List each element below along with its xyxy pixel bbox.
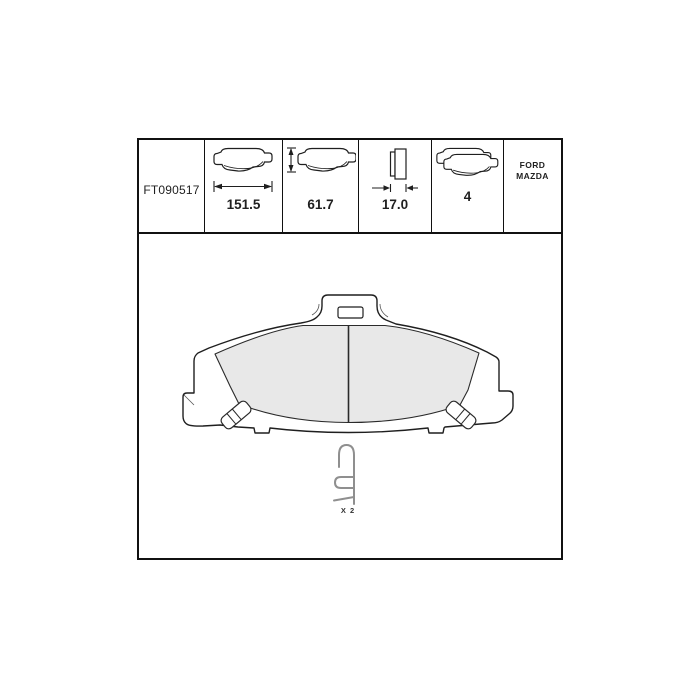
fillet-detail-left [312,304,319,315]
pad-thickness-icon [360,145,430,195]
height-value: 61.7 [307,197,333,212]
thickness-value: 17.0 [382,197,408,212]
clip-quantity-label: X 2 [331,506,365,515]
pad-set-icon [433,145,503,187]
width-value: 151.5 [227,197,261,212]
width-cell: 151.5 [205,140,283,232]
make-mazda: MAZDA [516,171,549,182]
retaining-clip-icon [334,445,354,504]
pad-height-icon [286,145,356,195]
diagram-page: FT090517 [0,0,700,700]
pad-width-icon [209,145,279,195]
quantity-cell: 4 [432,140,504,232]
thickness-cell: 17.0 [359,140,432,232]
spec-frame: FT090517 [137,138,563,560]
makes-list: FORD MAZDA [516,140,549,181]
tab-slot [338,307,363,318]
quantity-value: 4 [464,189,472,204]
make-ford: FORD [516,160,549,171]
fillet-detail-right [380,304,388,317]
friction-material-shape [215,326,479,423]
part-number: FT090517 [143,183,199,197]
drawing-panel: X 2 [139,234,560,557]
spec-table: FT090517 [139,140,561,234]
height-cell: 61.7 [283,140,359,232]
makes-cell: FORD MAZDA [504,140,561,232]
part-number-cell: FT090517 [139,140,205,232]
